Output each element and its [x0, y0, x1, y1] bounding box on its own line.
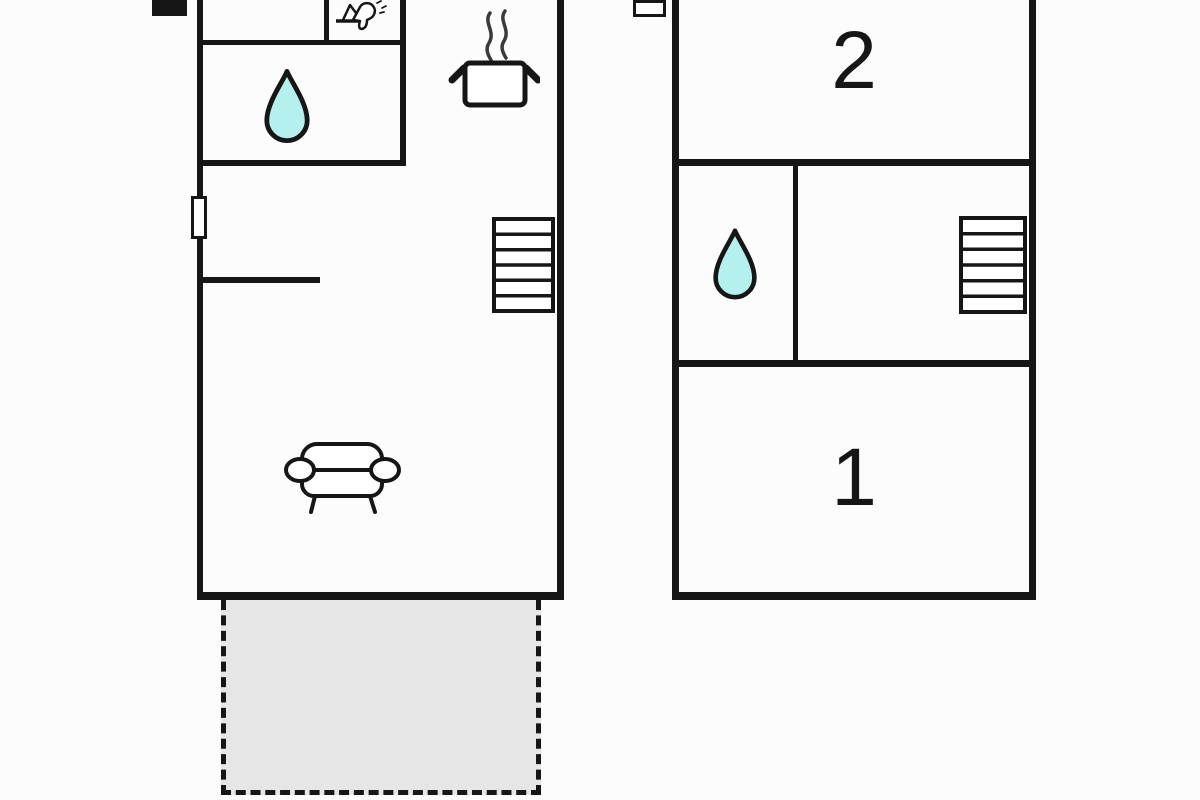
floor-plan-canvas: 2 1: [0, 0, 1200, 800]
wall-room1-north: [679, 360, 1029, 367]
cooking-pot-icon: [448, 5, 540, 110]
wall-top-room-divider: [200, 40, 406, 45]
room-label-2: 2: [679, 0, 1029, 122]
sofa-icon: [283, 441, 404, 515]
wall-room2-south: [679, 159, 1029, 166]
wall-mid-divider: [793, 159, 798, 367]
wall-bathroom-east: [400, 0, 406, 166]
window-icon: [191, 196, 207, 239]
window-icon: [633, 0, 666, 17]
wall-bathroom-south: [200, 160, 406, 166]
terrace-area: [221, 600, 541, 795]
faucet-icon: [333, 0, 389, 33]
wall-half-partition: [203, 277, 320, 283]
wall-left-unit-south: [197, 592, 564, 600]
room-label-1: 1: [679, 367, 1029, 589]
wall-right-unit-west: [672, 0, 679, 600]
wall-left-unit-west: [197, 0, 203, 600]
chimney-icon: [152, 0, 187, 16]
stairs-icon: [492, 217, 555, 313]
water-drop-icon: [711, 226, 759, 302]
wall-right-unit-east: [1029, 0, 1036, 600]
wall-left-unit-east: [557, 0, 564, 600]
water-drop-icon: [262, 66, 312, 146]
wall-faucet-room-west: [324, 0, 329, 45]
wall-right-unit-south: [672, 592, 1036, 600]
stairs-icon: [959, 216, 1027, 314]
